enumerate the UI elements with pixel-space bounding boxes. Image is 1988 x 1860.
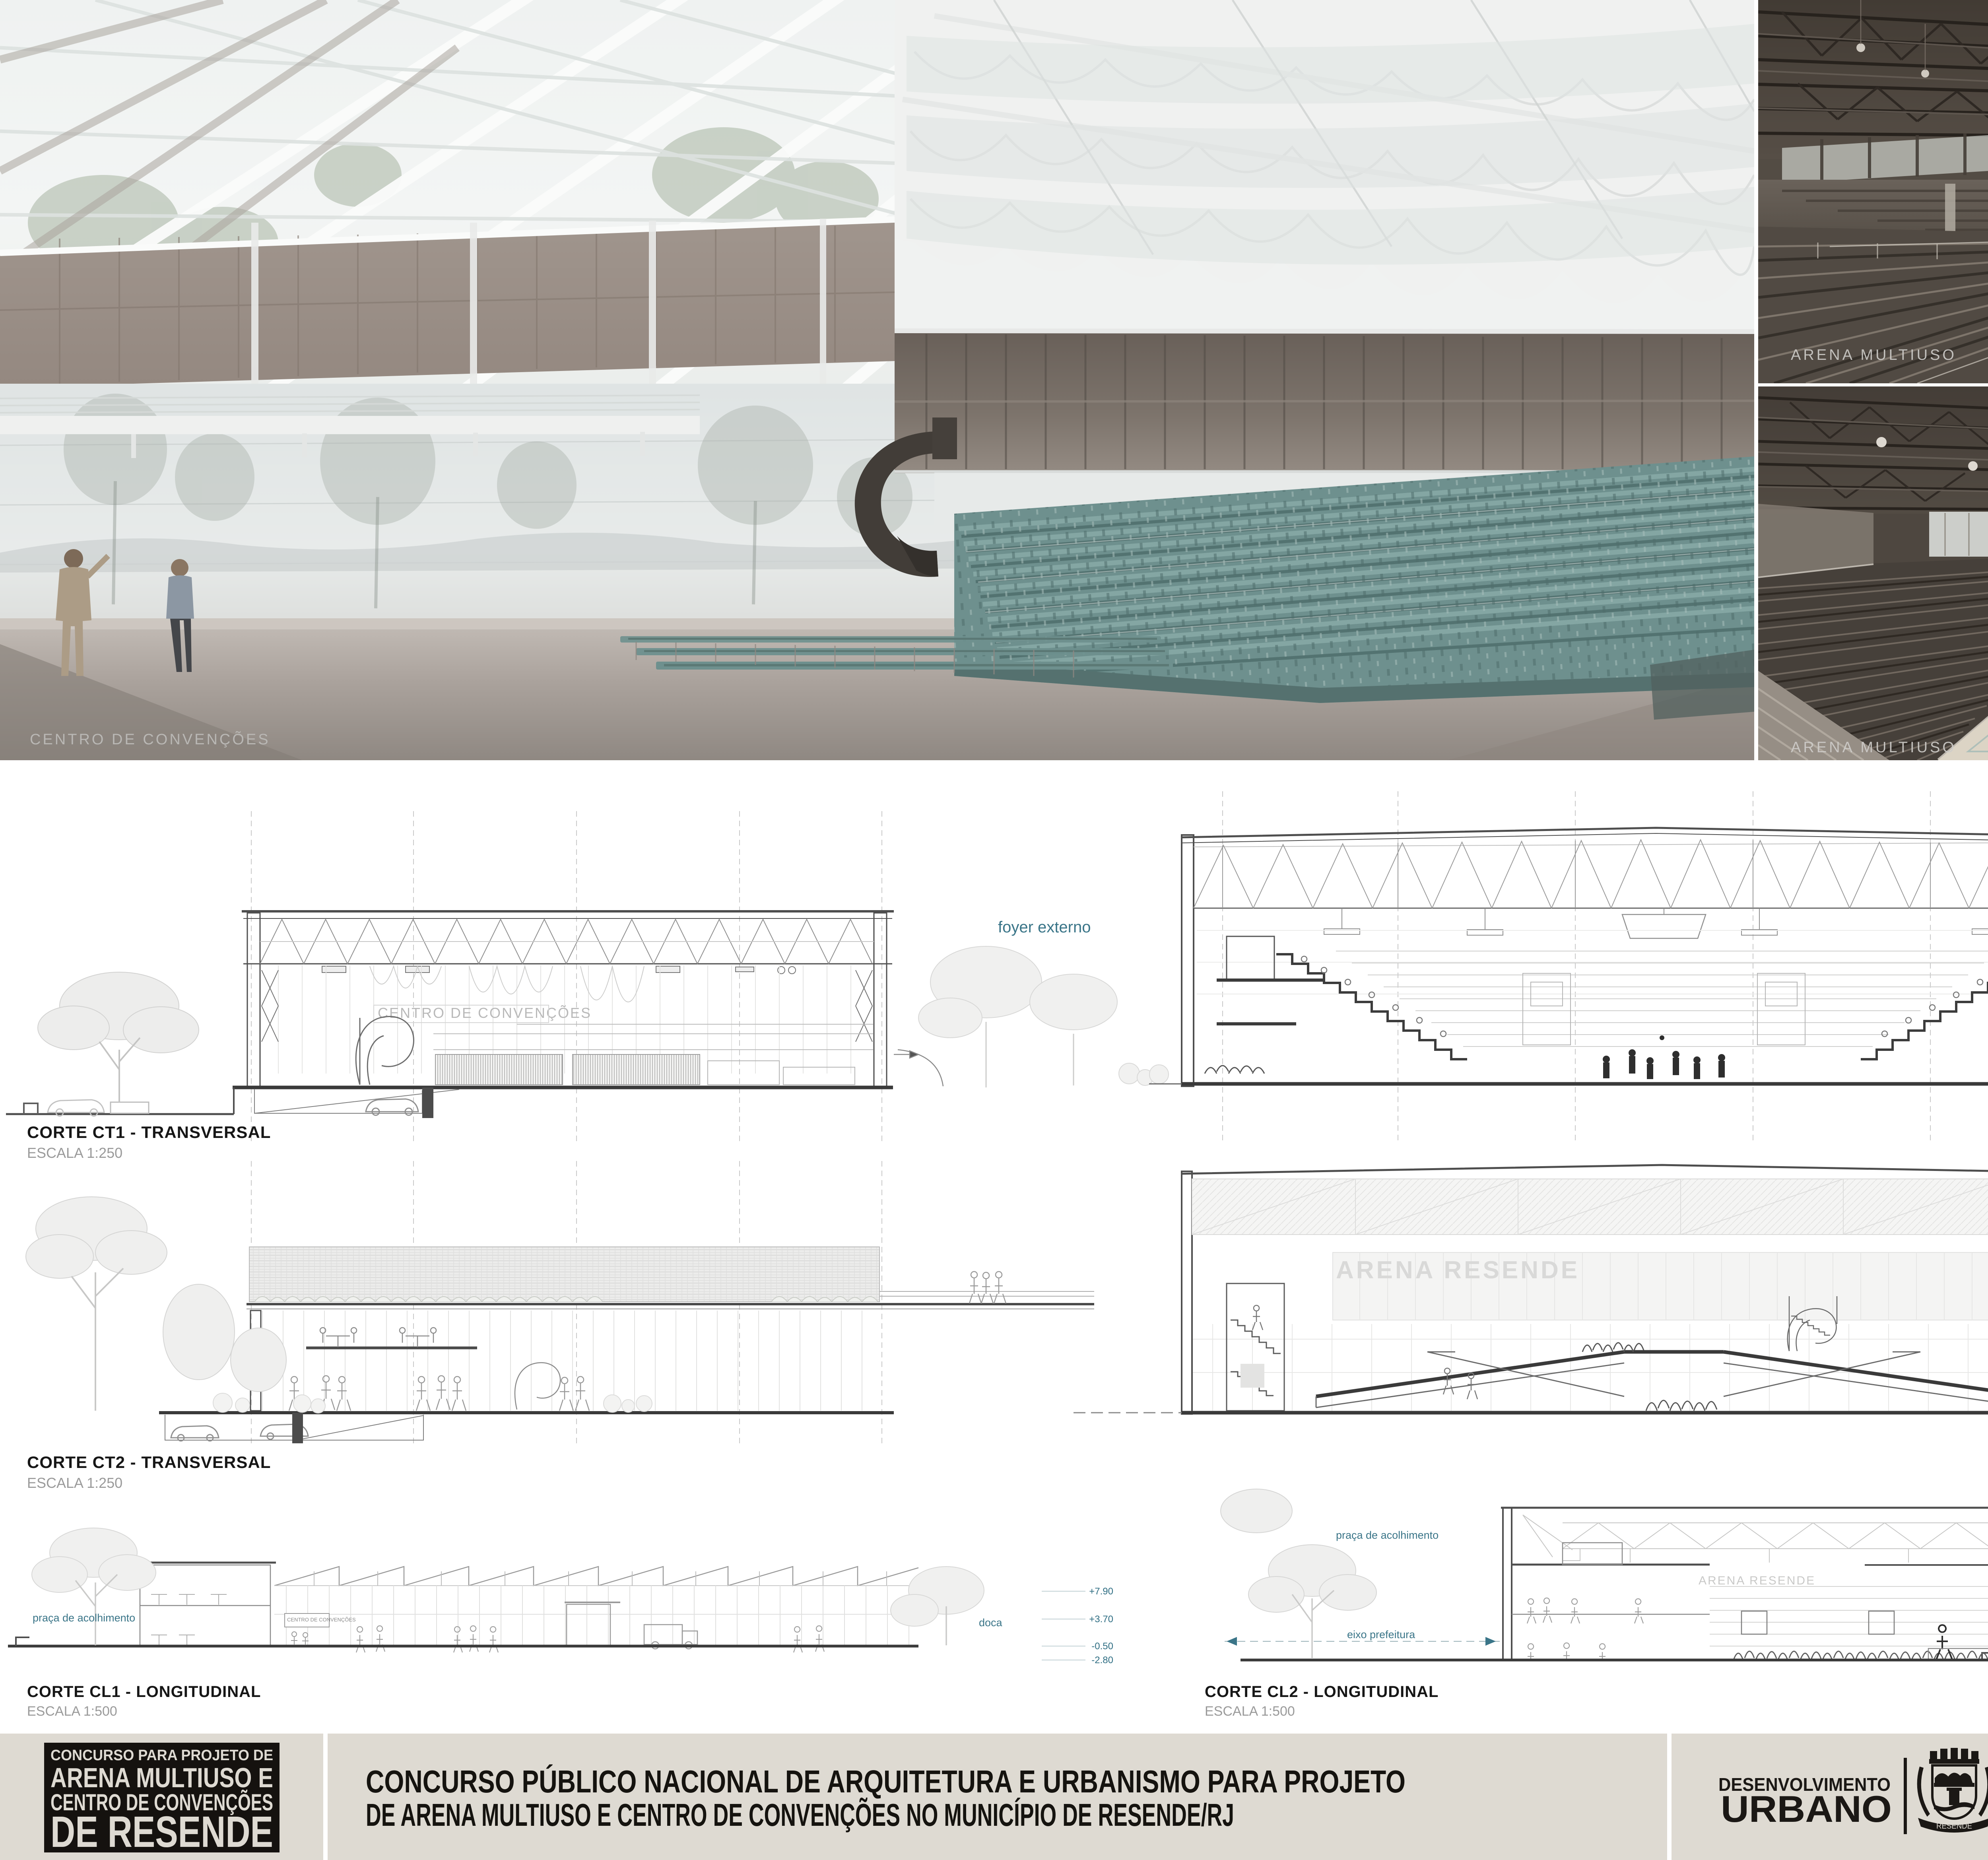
svg-text:-2.80: -2.80 xyxy=(1091,1655,1113,1666)
svg-text:CORTE CT2 - TRANSVERSAL: CORTE CT2 - TRANSVERSAL xyxy=(27,1453,271,1472)
svg-text:ARENA RESENDE: ARENA RESENDE xyxy=(1699,1574,1815,1587)
svg-text:praça de acolhimento: praça de acolhimento xyxy=(33,1612,135,1624)
svg-text:CORTE CT1 - TRANSVERSAL: CORTE CT1 - TRANSVERSAL xyxy=(27,1123,271,1142)
svg-text:DE ARENA MULTIUSO E CENTRO DE: DE ARENA MULTIUSO E CENTRO DE CONVENÇÕES… xyxy=(366,1797,1234,1833)
svg-text:CORTE CL1 - LONGITUDINAL: CORTE CL1 - LONGITUDINAL xyxy=(27,1683,261,1701)
svg-text:CENTRO DE CONVENÇÕES: CENTRO DE CONVENÇÕES xyxy=(378,1005,592,1021)
svg-text:URBANO: URBANO xyxy=(1721,1788,1892,1830)
svg-text:-0.50: -0.50 xyxy=(1091,1641,1113,1652)
svg-text:ESCALA 1:500: ESCALA 1:500 xyxy=(27,1704,117,1719)
svg-text:CONCURSO PARA PROJETO DE: CONCURSO PARA PROJETO DE xyxy=(50,1747,273,1764)
svg-text:doca: doca xyxy=(979,1617,1003,1629)
svg-text:ARENA MULTIUSO E: ARENA MULTIUSO E xyxy=(50,1762,273,1793)
svg-text:CENTRO DE CONVENÇÕES: CENTRO DE CONVENÇÕES xyxy=(287,1617,356,1623)
svg-text:RESENDE: RESENDE xyxy=(1936,1822,1972,1831)
svg-text:ESCALA 1:500: ESCALA 1:500 xyxy=(1205,1704,1295,1719)
svg-text:ESCALA 1:250: ESCALA 1:250 xyxy=(27,1475,122,1491)
svg-text:CENTRO DE CONVENÇÕES: CENTRO DE CONVENÇÕES xyxy=(30,730,270,748)
svg-text:CORTE CL2 - LONGITUDINAL: CORTE CL2 - LONGITUDINAL xyxy=(1205,1683,1439,1701)
svg-text:ESCALA 1:250: ESCALA 1:250 xyxy=(27,1145,122,1161)
svg-text:CONCURSO PÚBLICO NACIONAL DE A: CONCURSO PÚBLICO NACIONAL DE ARQUITETURA… xyxy=(366,1764,1406,1799)
svg-text:foyer externo: foyer externo xyxy=(998,918,1091,936)
svg-text:ARENA RESENDE: ARENA RESENDE xyxy=(1336,1256,1580,1284)
svg-text:eixo prefeitura: eixo prefeitura xyxy=(1347,1629,1415,1641)
svg-text:ARENA MULTIUSO: ARENA MULTIUSO xyxy=(1791,347,1957,363)
svg-text:ARENA MULTIUSO: ARENA MULTIUSO xyxy=(1791,739,1957,756)
svg-text:+7.90: +7.90 xyxy=(1089,1586,1113,1597)
svg-text:DE RESENDE: DE RESENDE xyxy=(50,1808,273,1852)
svg-text:praça de acolhimento: praça de acolhimento xyxy=(1336,1529,1439,1541)
svg-text:+3.70: +3.70 xyxy=(1089,1614,1113,1625)
